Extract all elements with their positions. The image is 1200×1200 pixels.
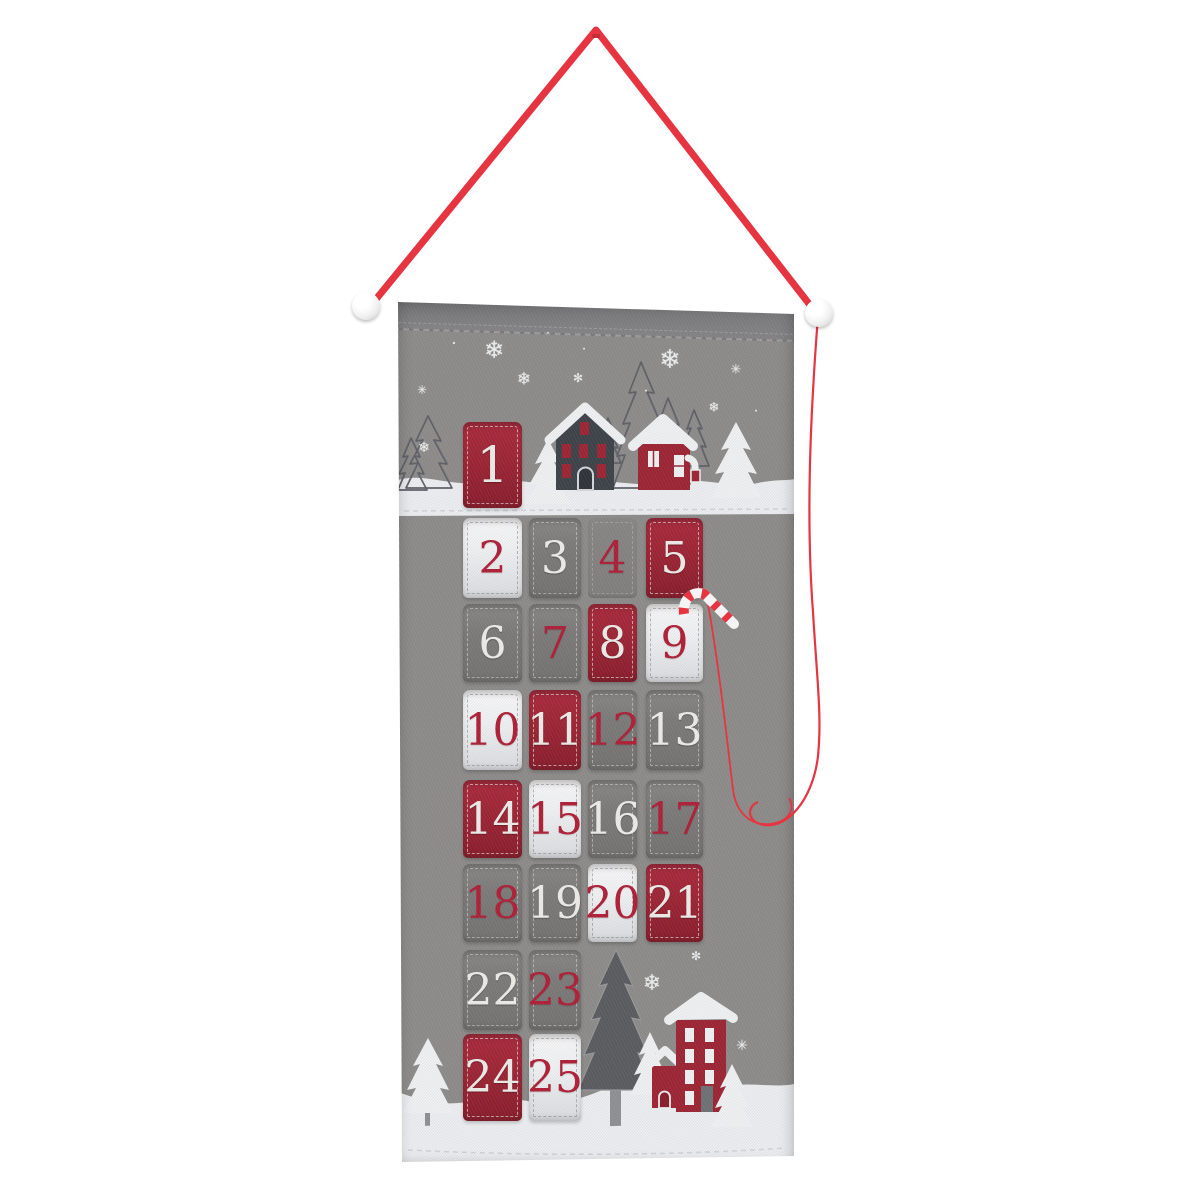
pocket-number: 21 xyxy=(646,864,703,942)
pocket-number: 14 xyxy=(463,780,522,858)
pom-pom-right xyxy=(805,299,833,327)
pocket-grid: 1234567891011121314151617181920212223242… xyxy=(398,298,794,1162)
pocket-day-15: 15 xyxy=(529,780,581,858)
pocket-day-2: 2 xyxy=(463,518,522,598)
pocket-number: 23 xyxy=(529,950,581,1030)
pocket-day-14: 14 xyxy=(463,780,522,858)
pocket-number: 9 xyxy=(646,604,703,682)
pocket-day-1: 1 xyxy=(463,422,522,508)
pocket-day-4: 4 xyxy=(588,518,637,598)
product-photo: ❄✳❄✻❄✳❄❄•••••❄✻✳✻•• 12345678910111213141… xyxy=(0,0,1200,1200)
pocket-number: 24 xyxy=(463,1034,522,1121)
pocket-day-9: 9 xyxy=(646,604,703,682)
pocket-number: 13 xyxy=(646,690,703,770)
pocket-number: 12 xyxy=(588,690,637,770)
ribbon-triangle xyxy=(368,30,817,314)
pocket-number: 15 xyxy=(529,780,581,858)
pocket-number: 6 xyxy=(463,604,522,682)
pocket-day-16: 16 xyxy=(588,780,637,858)
pocket-day-6: 6 xyxy=(463,604,522,682)
pocket-number: 10 xyxy=(463,690,522,770)
pocket-number: 2 xyxy=(463,518,522,598)
pocket-day-21: 21 xyxy=(646,864,703,942)
pocket-day-5: 5 xyxy=(646,518,703,598)
pocket-day-7: 7 xyxy=(529,604,581,682)
pocket-number: 1 xyxy=(463,422,522,508)
pocket-number: 8 xyxy=(588,604,637,682)
pocket-number: 3 xyxy=(529,518,581,598)
pocket-number: 18 xyxy=(463,864,522,942)
pocket-number: 17 xyxy=(646,780,703,858)
pocket-day-11: 11 xyxy=(529,690,581,770)
pocket-number: 25 xyxy=(529,1034,581,1121)
pocket-day-22: 22 xyxy=(463,950,522,1030)
pocket-day-20: 20 xyxy=(588,864,637,942)
pocket-number: 5 xyxy=(646,518,703,598)
pocket-day-13: 13 xyxy=(646,690,703,770)
pocket-day-10: 10 xyxy=(463,690,522,770)
pocket-day-18: 18 xyxy=(463,864,522,942)
calendar-banner: ❄✳❄✻❄✳❄❄•••••❄✻✳✻•• 12345678910111213141… xyxy=(398,298,794,1162)
pocket-day-17: 17 xyxy=(646,780,703,858)
pocket-day-3: 3 xyxy=(529,518,581,598)
pocket-day-25: 25 xyxy=(529,1034,581,1121)
pocket-number: 16 xyxy=(588,780,637,858)
pocket-day-12: 12 xyxy=(588,690,637,770)
pocket-number: 11 xyxy=(529,690,581,770)
pocket-number: 19 xyxy=(529,864,581,942)
pocket-number: 22 xyxy=(463,950,522,1030)
pocket-number: 4 xyxy=(588,518,637,598)
pom-pom-left xyxy=(352,292,380,320)
pocket-number: 7 xyxy=(529,604,581,682)
pocket-day-24: 24 xyxy=(463,1034,522,1121)
pocket-day-8: 8 xyxy=(588,604,637,682)
pocket-number: 20 xyxy=(588,864,637,942)
pocket-day-19: 19 xyxy=(529,864,581,942)
pocket-day-23: 23 xyxy=(529,950,581,1030)
